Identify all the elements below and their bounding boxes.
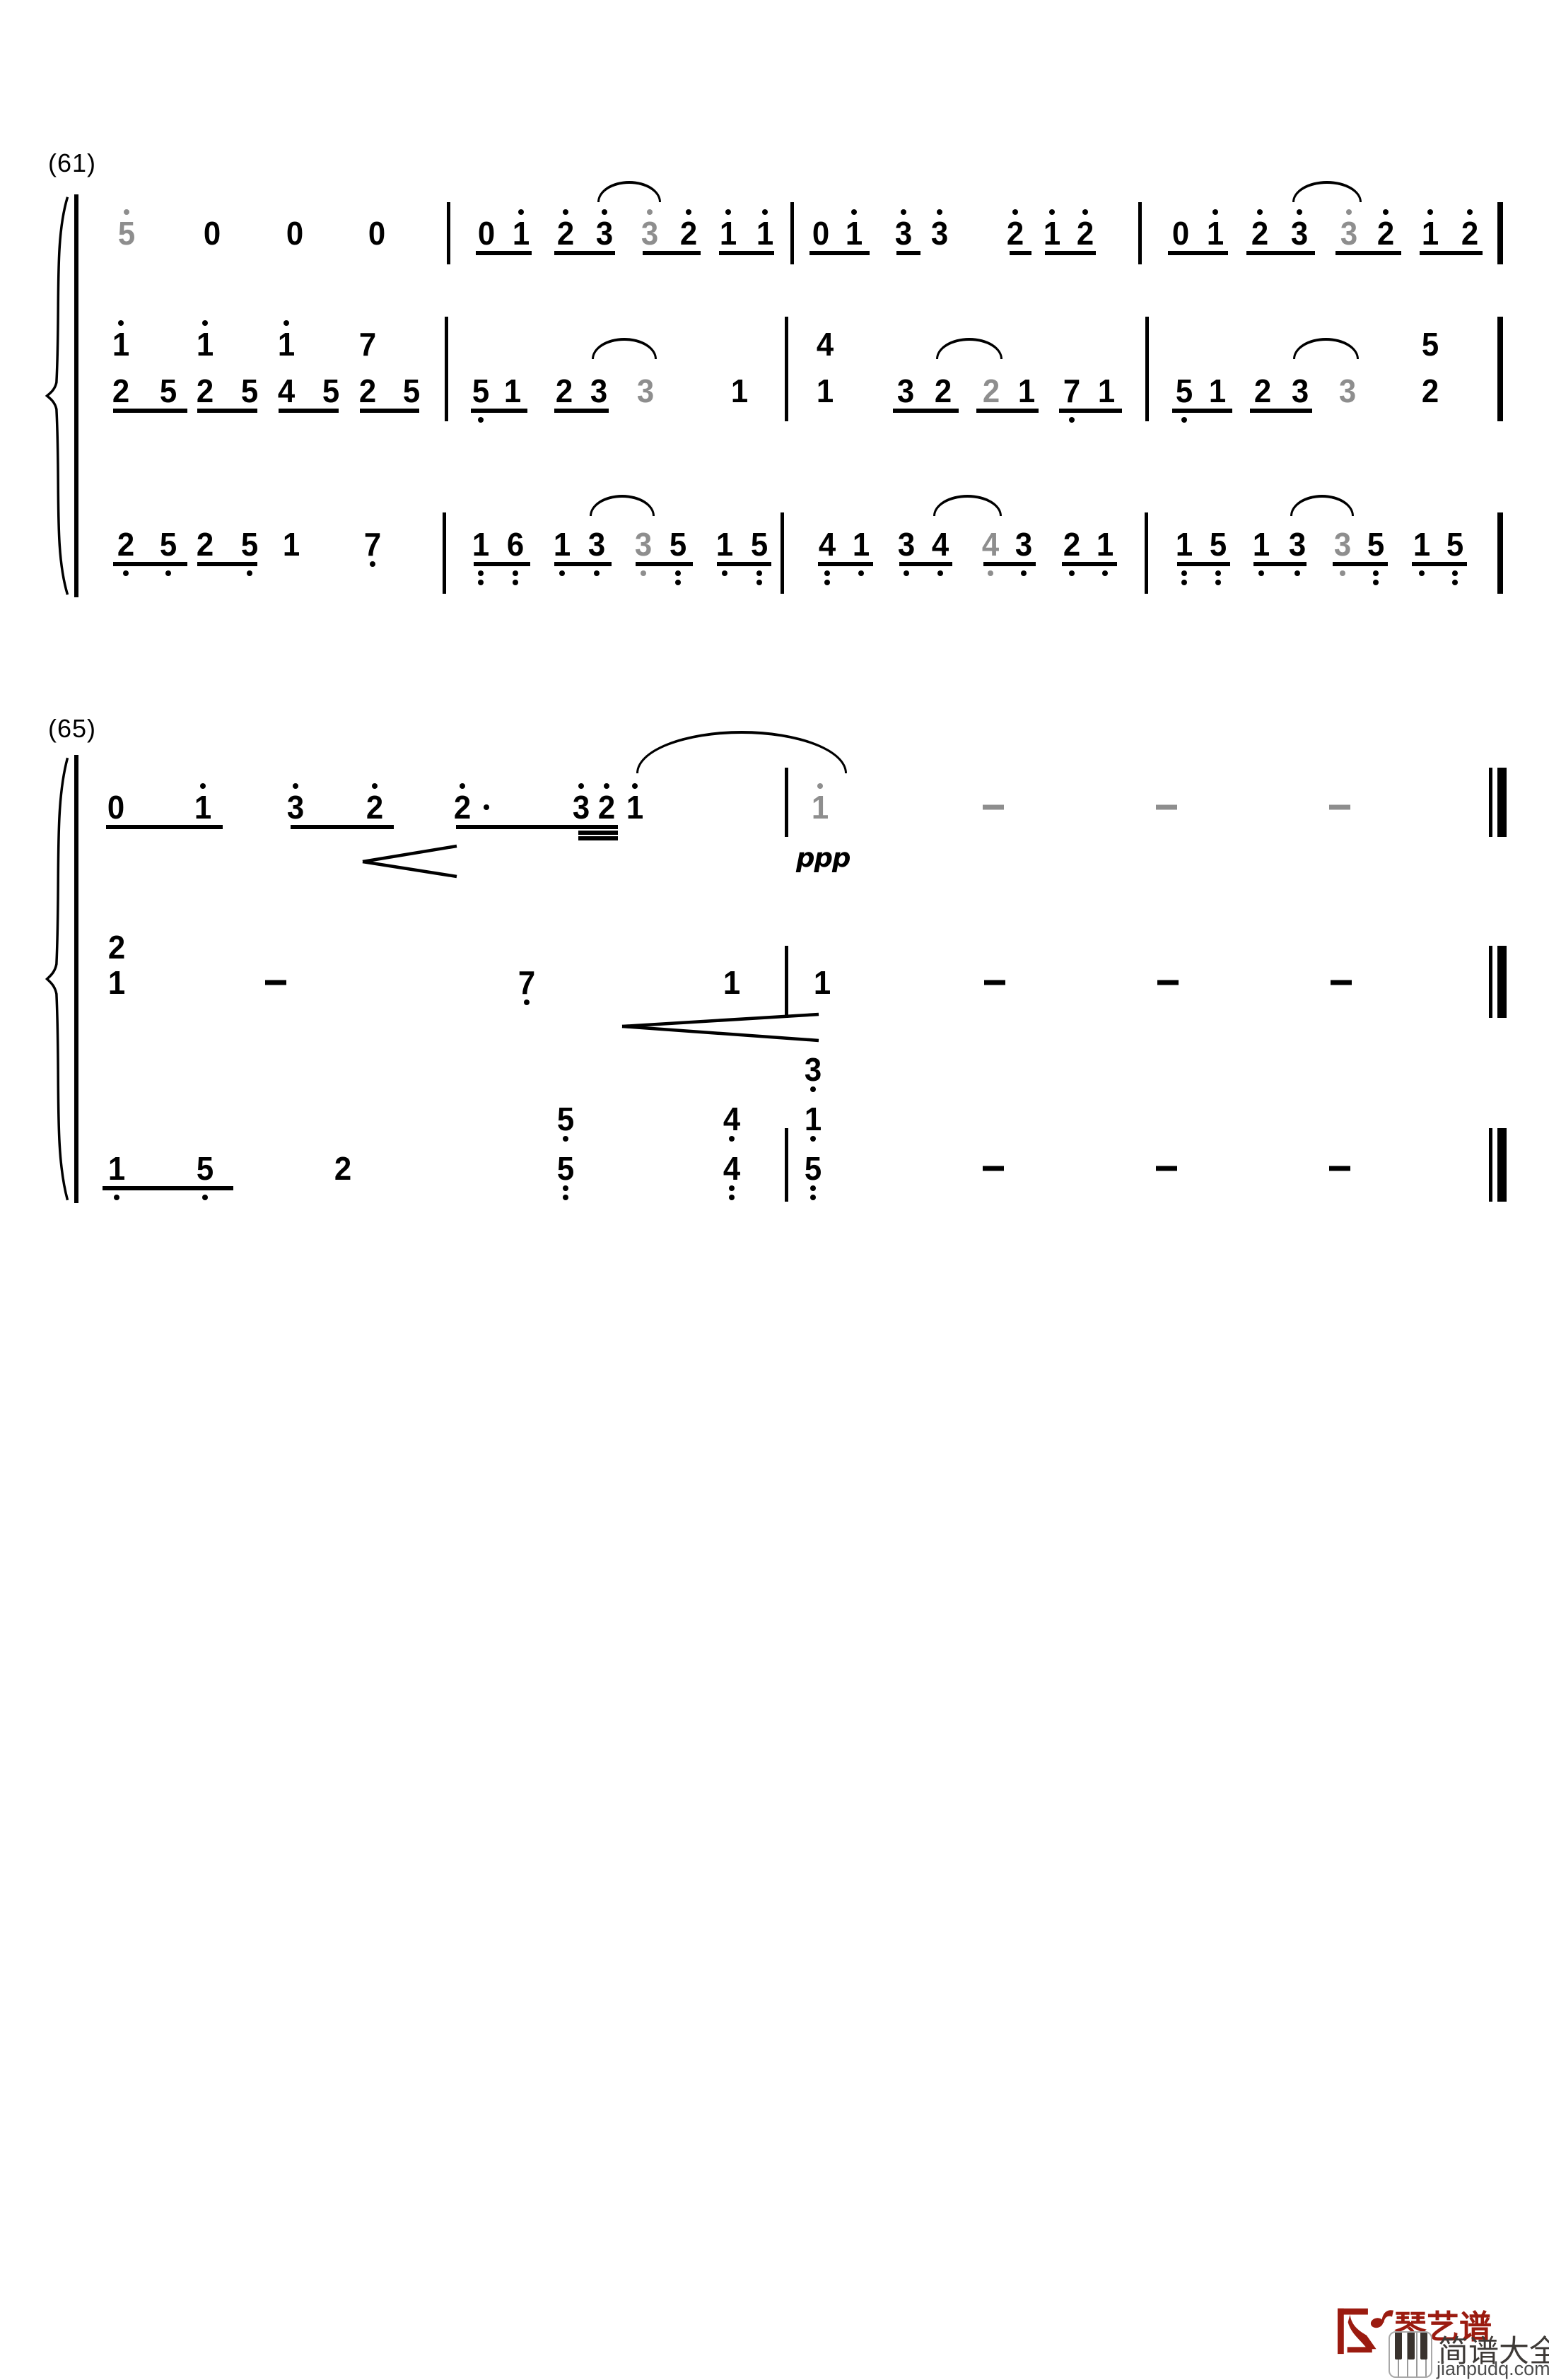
note-token: 5 bbox=[160, 528, 177, 561]
barline bbox=[1489, 1128, 1492, 1202]
note-token: 1 bbox=[1207, 217, 1224, 250]
measure-number-label: (65) bbox=[48, 714, 96, 744]
note-token: 1 bbox=[112, 328, 129, 360]
note-token: 5 bbox=[805, 1152, 822, 1185]
octave-dot-below bbox=[513, 570, 518, 576]
octave-dot-above bbox=[460, 783, 465, 789]
note-token: 2 bbox=[366, 791, 383, 823]
note-token: 1 bbox=[756, 217, 773, 250]
octave-dot-above bbox=[118, 320, 124, 326]
octave-dot-below bbox=[478, 570, 484, 576]
note-token: 1 bbox=[197, 328, 214, 360]
note-token: 3 bbox=[588, 528, 605, 561]
octave-dot-above bbox=[602, 209, 607, 215]
barline bbox=[1489, 768, 1492, 837]
note-token: 7 bbox=[518, 966, 535, 999]
rest-token: 0 bbox=[107, 791, 124, 823]
octave-dot-above bbox=[762, 209, 768, 215]
note-token: 3 bbox=[641, 217, 658, 250]
note-token: 3 bbox=[1340, 217, 1357, 250]
dash-extension-token bbox=[1329, 1166, 1350, 1171]
note-token: 7 bbox=[1063, 375, 1080, 407]
note-token: 1 bbox=[805, 1103, 822, 1135]
note-token: 3 bbox=[1289, 528, 1306, 561]
octave-dot-below bbox=[1181, 570, 1187, 576]
note-token: 3 bbox=[1015, 528, 1032, 561]
octave-dot-below bbox=[1373, 570, 1379, 576]
octave-dot-above bbox=[604, 783, 609, 789]
note-token: 2 bbox=[1461, 217, 1478, 250]
note-token: 1 bbox=[853, 528, 870, 561]
note-token: 5 bbox=[241, 528, 258, 561]
sheet-music-page: 琴艺谱 简谱大全 jianpudq.com (61)50000123321101… bbox=[0, 0, 1549, 2380]
final-thick-barline bbox=[1497, 946, 1507, 1018]
piano-black-key bbox=[1420, 2333, 1427, 2360]
barline bbox=[447, 202, 450, 264]
octave-dot-below bbox=[722, 570, 727, 576]
barline bbox=[781, 512, 784, 594]
note-token: 1 bbox=[626, 791, 643, 823]
dash-extension-token bbox=[1331, 980, 1352, 985]
octave-dot-below bbox=[478, 580, 484, 585]
octave-dot-below bbox=[1181, 580, 1187, 585]
note-token: 2 bbox=[108, 931, 125, 963]
note-token: 6 bbox=[507, 528, 524, 561]
system-start-barline bbox=[74, 755, 78, 1203]
octave-dot-below bbox=[937, 570, 943, 576]
octave-dot-below bbox=[370, 561, 375, 567]
octave-dot-below bbox=[729, 1195, 735, 1200]
note-token: 1 bbox=[1044, 217, 1060, 250]
octave-dot-below bbox=[563, 1195, 568, 1200]
note-token: 3 bbox=[1334, 528, 1351, 561]
octave-dot-above bbox=[686, 209, 691, 215]
barline bbox=[1497, 317, 1503, 421]
rest-token: 0 bbox=[286, 217, 303, 250]
octave-dot-below bbox=[247, 570, 252, 576]
octave-dot-below bbox=[1069, 417, 1075, 423]
note-token: 1 bbox=[1209, 375, 1226, 407]
octave-dot-above bbox=[563, 209, 568, 215]
rest-token: 0 bbox=[478, 217, 495, 250]
octave-dot-below bbox=[123, 570, 129, 576]
note-token: 5 bbox=[751, 528, 768, 561]
note-token: 3 bbox=[573, 791, 590, 823]
octave-dot-below bbox=[1258, 570, 1264, 576]
octave-dot-below bbox=[1069, 570, 1075, 576]
note-token: 3 bbox=[287, 791, 304, 823]
barline bbox=[443, 512, 446, 594]
beam-underline bbox=[578, 831, 618, 835]
octave-dot-below bbox=[594, 570, 600, 576]
note-token: 1 bbox=[817, 375, 834, 407]
slur-tie-arc bbox=[1290, 495, 1354, 516]
note-token: 4 bbox=[982, 528, 999, 561]
octave-dot-below bbox=[1021, 570, 1027, 576]
note-token: 1 bbox=[1422, 217, 1439, 250]
piano-black-key bbox=[1408, 2333, 1415, 2360]
slur-tie-arc bbox=[592, 338, 657, 359]
slur-tie-arc bbox=[636, 731, 847, 773]
note-token: 4 bbox=[817, 328, 834, 360]
octave-dot-above bbox=[1012, 209, 1018, 215]
hairpin-line bbox=[363, 846, 457, 862]
octave-dot-above bbox=[1212, 209, 1218, 215]
octave-dot-above bbox=[518, 209, 524, 215]
note-token: 2 bbox=[197, 528, 214, 561]
note-token: 3 bbox=[805, 1053, 822, 1086]
note-token: 2 bbox=[556, 375, 573, 407]
note-token: 3 bbox=[637, 375, 654, 407]
note-token: 1 bbox=[1253, 528, 1270, 561]
piano-keys-icon bbox=[1389, 2331, 1432, 2378]
note-token: 1 bbox=[1176, 528, 1193, 561]
octave-dot-above bbox=[372, 783, 378, 789]
note-token: 3 bbox=[1291, 217, 1308, 250]
octave-dot-below bbox=[1215, 580, 1221, 585]
slur-tie-arc bbox=[1292, 181, 1362, 202]
dash-extension-token bbox=[1156, 1166, 1177, 1171]
note-token: 3 bbox=[1339, 375, 1356, 407]
note-token: 1 bbox=[1098, 375, 1115, 407]
barline bbox=[785, 317, 788, 421]
octave-dot-below bbox=[1102, 570, 1108, 576]
note-token: 2 bbox=[112, 375, 129, 407]
dash-extension-token bbox=[1157, 980, 1179, 985]
note-token: 1 bbox=[513, 217, 530, 250]
dash-extension-token bbox=[265, 980, 286, 985]
note-token: 3 bbox=[1292, 375, 1309, 407]
octave-dot-below bbox=[563, 1136, 568, 1142]
dash-extension-token bbox=[1156, 805, 1177, 810]
octave-dot-below bbox=[513, 580, 518, 585]
octave-dot-below bbox=[810, 1086, 816, 1092]
note-token: 2 bbox=[1422, 375, 1439, 407]
octave-dot-above bbox=[1467, 209, 1473, 215]
octave-dot-below bbox=[729, 1136, 735, 1142]
note-token: 7 bbox=[364, 528, 381, 561]
note-token: 5 bbox=[557, 1152, 574, 1185]
final-thick-barline bbox=[1497, 768, 1507, 837]
octave-dot-below bbox=[1181, 417, 1187, 423]
octave-dot-below bbox=[858, 570, 864, 576]
octave-dot-above bbox=[1346, 209, 1352, 215]
note-token: 5 bbox=[403, 375, 420, 407]
note-token: 2 bbox=[1077, 217, 1094, 250]
note-token: 5 bbox=[1210, 528, 1227, 561]
barline bbox=[785, 946, 788, 1018]
note-token: 2 bbox=[334, 1152, 351, 1185]
octave-dot-above bbox=[647, 209, 653, 215]
system-brace-icon bbox=[44, 194, 71, 597]
system-start-barline bbox=[74, 194, 78, 597]
octave-dot-below bbox=[478, 417, 484, 423]
octave-dot-above bbox=[1383, 209, 1389, 215]
octave-dot-above bbox=[937, 209, 942, 215]
note-token: 1 bbox=[846, 217, 863, 250]
note-token: 2 bbox=[1377, 217, 1394, 250]
octave-dot-below bbox=[1373, 580, 1379, 585]
note-token: 1 bbox=[723, 966, 740, 999]
octave-dot-below bbox=[756, 580, 762, 585]
slur-tie-arc bbox=[597, 181, 661, 202]
note-token: 5 bbox=[322, 375, 339, 407]
barline bbox=[1138, 202, 1142, 264]
octave-dot-below bbox=[559, 570, 565, 576]
note-token: 5 bbox=[670, 528, 686, 561]
note-token: 2 bbox=[454, 791, 471, 823]
octave-dot-above bbox=[1049, 209, 1055, 215]
note-token: 1 bbox=[814, 966, 831, 999]
slur-tie-arc bbox=[1293, 338, 1359, 359]
note-token: 1 bbox=[194, 791, 211, 823]
system-brace-icon bbox=[44, 755, 71, 1203]
barline bbox=[445, 317, 448, 421]
rest-token: 0 bbox=[368, 217, 385, 250]
octave-dot-below bbox=[729, 1185, 735, 1191]
note-token: 5 bbox=[557, 1103, 574, 1135]
hairpin-line bbox=[622, 1026, 819, 1040]
octave-dot-above bbox=[1427, 209, 1433, 215]
note-token: 2 bbox=[359, 375, 376, 407]
piano-key-separator bbox=[1416, 2333, 1418, 2376]
octave-dot-above bbox=[202, 320, 208, 326]
note-token: 3 bbox=[635, 528, 652, 561]
note-token: 1 bbox=[716, 528, 733, 561]
note-token: 5 bbox=[1422, 328, 1439, 360]
note-token: 3 bbox=[898, 528, 915, 561]
note-token: 1 bbox=[108, 1152, 125, 1185]
octave-dot-below bbox=[1452, 580, 1458, 585]
octave-dot-below bbox=[202, 1195, 208, 1200]
note-token: 2 bbox=[1251, 217, 1268, 250]
note-token: 5 bbox=[472, 375, 489, 407]
octave-dot-below bbox=[524, 1000, 530, 1005]
note-token: 2 bbox=[557, 217, 574, 250]
octave-dot-above bbox=[200, 783, 206, 789]
octave-dot-below bbox=[1419, 570, 1425, 576]
note-token: 4 bbox=[819, 528, 836, 561]
note-token: 5 bbox=[118, 217, 135, 250]
note-token: 2 bbox=[197, 375, 214, 407]
qinyipu-logo-icon bbox=[1333, 2302, 1397, 2357]
octave-dot-below bbox=[988, 570, 993, 576]
slur-tie-arc bbox=[590, 495, 655, 516]
dash-extension-token bbox=[983, 1166, 1004, 1171]
octave-dot-below bbox=[563, 1185, 568, 1191]
octave-dot-below bbox=[1294, 570, 1300, 576]
octave-dot-above bbox=[293, 783, 298, 789]
note-token: 2 bbox=[1063, 528, 1080, 561]
augmentation-dot bbox=[484, 804, 489, 810]
octave-dot-below bbox=[165, 570, 171, 576]
piano-black-key bbox=[1395, 2333, 1402, 2360]
octave-dot-above bbox=[1082, 209, 1088, 215]
octave-dot-below bbox=[824, 580, 830, 585]
note-token: 1 bbox=[1413, 528, 1430, 561]
octave-dot-above bbox=[1297, 209, 1302, 215]
dash-extension-token bbox=[984, 980, 1005, 985]
octave-dot-above bbox=[284, 320, 289, 326]
barline bbox=[1145, 317, 1149, 421]
barline bbox=[1145, 512, 1148, 594]
note-token: 5 bbox=[1446, 528, 1463, 561]
note-token: 2 bbox=[117, 528, 134, 561]
dash-extension-token bbox=[983, 805, 1004, 810]
note-token: 1 bbox=[283, 528, 300, 561]
octave-dot-above bbox=[578, 783, 584, 789]
note-token: 4 bbox=[278, 375, 295, 407]
note-token: 2 bbox=[598, 791, 615, 823]
octave-dot-below bbox=[114, 1195, 119, 1200]
barline bbox=[790, 202, 794, 264]
octave-dot-below bbox=[675, 580, 681, 585]
barline bbox=[785, 768, 788, 837]
note-token: 5 bbox=[197, 1152, 214, 1185]
note-token: 5 bbox=[1367, 528, 1384, 561]
note-token: 5 bbox=[160, 375, 177, 407]
beam-underline bbox=[456, 825, 618, 829]
note-token: 2 bbox=[680, 217, 697, 250]
note-token: 3 bbox=[596, 217, 613, 250]
octave-dot-below bbox=[810, 1136, 816, 1142]
hairpin-line bbox=[363, 862, 457, 877]
note-token: 3 bbox=[897, 375, 914, 407]
octave-dot-below bbox=[1340, 570, 1345, 576]
octave-dot-below bbox=[1452, 570, 1458, 576]
slur-tie-arc bbox=[933, 495, 1002, 516]
barline bbox=[1489, 946, 1492, 1018]
octave-dot-above bbox=[901, 209, 906, 215]
note-token: 2 bbox=[1254, 375, 1271, 407]
final-thick-barline bbox=[1497, 1128, 1507, 1202]
watermark-site-url: jianpudq.com bbox=[1437, 2358, 1549, 2380]
rest-token: 0 bbox=[1172, 217, 1189, 250]
dynamic-marking: ppp bbox=[796, 843, 850, 873]
octave-dot-below bbox=[824, 570, 830, 576]
note-token: 4 bbox=[932, 528, 949, 561]
octave-dot-below bbox=[810, 1195, 816, 1200]
note-token: 2 bbox=[935, 375, 952, 407]
note-token: 1 bbox=[731, 375, 748, 407]
note-token: 1 bbox=[1018, 375, 1035, 407]
octave-dot-above bbox=[1257, 209, 1263, 215]
note-token: 2 bbox=[983, 375, 1000, 407]
rest-token: 0 bbox=[204, 217, 221, 250]
note-token: 3 bbox=[895, 217, 912, 250]
note-token: 4 bbox=[723, 1103, 740, 1135]
note-token: 1 bbox=[812, 791, 829, 823]
octave-dot-below bbox=[756, 570, 762, 576]
note-token: 1 bbox=[554, 528, 571, 561]
slur-tie-arc bbox=[936, 338, 1003, 359]
note-token: 1 bbox=[108, 966, 125, 999]
octave-dot-above bbox=[725, 209, 731, 215]
octave-dot-above bbox=[817, 783, 823, 789]
note-token: 1 bbox=[504, 375, 521, 407]
note-token: 1 bbox=[472, 528, 489, 561]
octave-dot-above bbox=[632, 783, 638, 789]
octave-dot-below bbox=[641, 570, 646, 576]
note-token: 5 bbox=[1176, 375, 1193, 407]
note-token: 2 bbox=[1007, 217, 1024, 250]
barline bbox=[1497, 202, 1503, 264]
note-token: 4 bbox=[723, 1152, 740, 1185]
octave-dot-above bbox=[124, 209, 129, 215]
hairpin-line bbox=[622, 1014, 819, 1026]
note-token: 1 bbox=[1097, 528, 1113, 561]
note-token: 1 bbox=[720, 217, 737, 250]
octave-dot-above bbox=[851, 209, 857, 215]
octave-dot-below bbox=[675, 570, 681, 576]
note-token: 5 bbox=[241, 375, 258, 407]
barline bbox=[1497, 512, 1503, 594]
octave-dot-below bbox=[1215, 570, 1221, 576]
note-token: 3 bbox=[590, 375, 607, 407]
beam-underline bbox=[578, 836, 618, 840]
note-token: 3 bbox=[931, 217, 948, 250]
octave-dot-below bbox=[904, 570, 909, 576]
rest-token: 0 bbox=[812, 217, 829, 250]
dash-extension-token bbox=[1329, 805, 1350, 810]
note-token: 7 bbox=[359, 328, 376, 360]
octave-dot-below bbox=[810, 1185, 816, 1191]
note-token: 1 bbox=[278, 328, 295, 360]
barline bbox=[785, 1128, 788, 1202]
measure-number-label: (61) bbox=[48, 148, 96, 178]
